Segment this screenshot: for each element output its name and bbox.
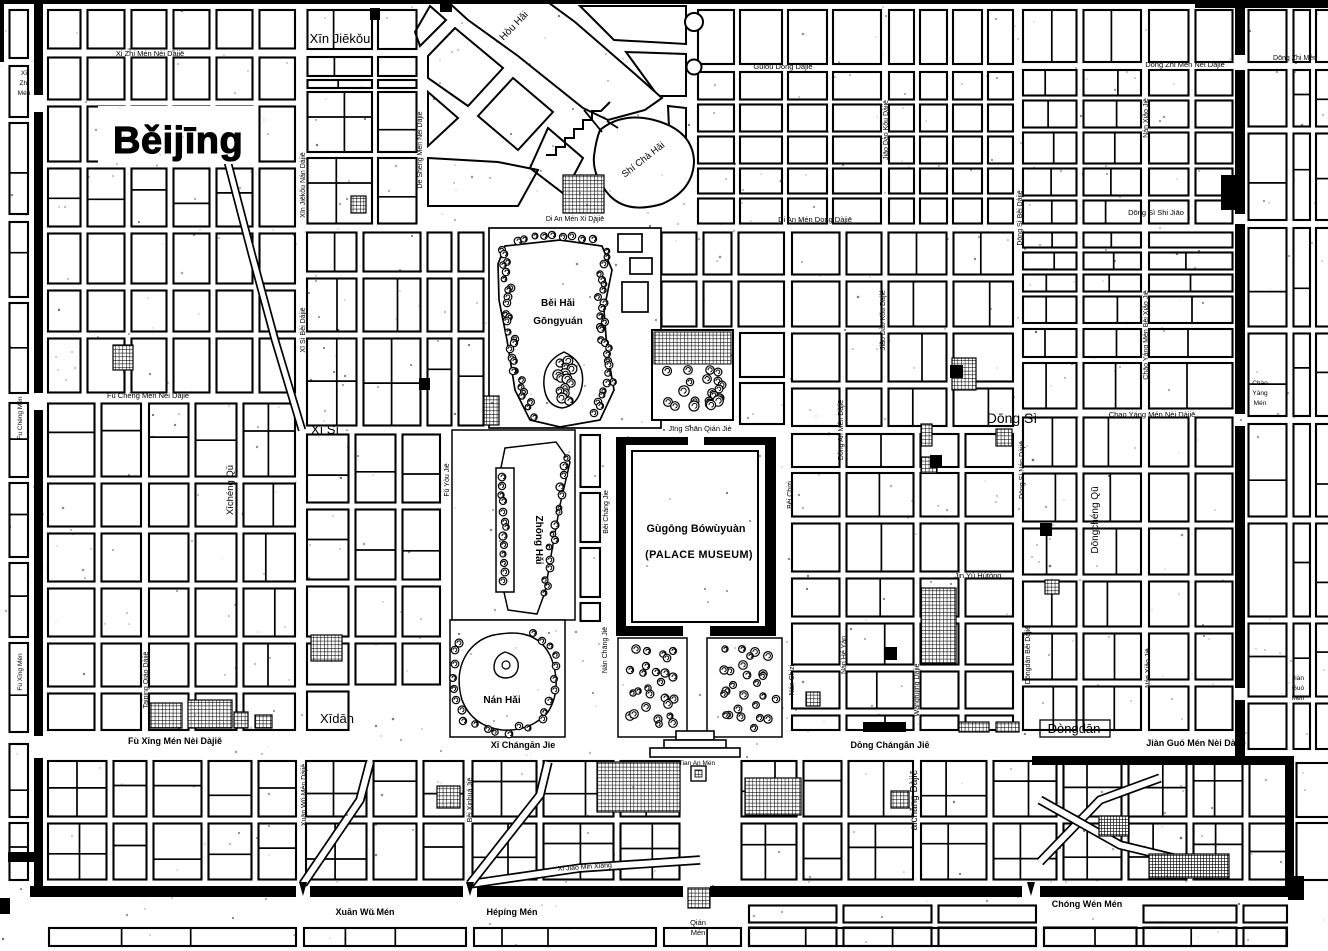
svg-text:Běi Xinhuá Jiē: Běi Xinhuá Jiē <box>467 778 474 823</box>
svg-text:Jiàn: Jiàn <box>1292 675 1304 682</box>
svg-text:Dōng Sì: Dōng Sì <box>987 410 1038 426</box>
svg-text:Běijīng: Běijīng <box>113 120 243 162</box>
svg-text:Dōng Sì Běi Dàjiē: Dōng Sì Běi Dàjiē <box>1017 190 1024 245</box>
svg-text:Hépíng Mén: Hépíng Mén <box>487 907 538 917</box>
svg-text:Chóng Wén Mén: Chóng Wén Mén <box>1052 899 1123 909</box>
svg-text:Jin Yú Hútòng: Jin Yú Hútòng <box>955 571 1002 580</box>
svg-text:Fù Xīng Mén Nèi Dàjiě: Fù Xīng Mén Nèi Dàjiě <box>128 736 222 746</box>
svg-text:Tian An Mén: Tian An Mén <box>679 760 716 767</box>
svg-text:Gùgōng Bówùyuàn: Gùgōng Bówùyuàn <box>647 523 746 535</box>
svg-text:Wángfǔjǐng Dàjiē: Wángfǔjǐng Dàjiē <box>914 663 921 716</box>
svg-text:Taiping Qiáo Dàjiē: Taiping Qiáo Dàjiē <box>143 651 150 708</box>
svg-text:aichǎng Dàjiē: aichǎng Dàjiē <box>909 769 920 830</box>
svg-text:Nán Xiǎo Jiē: Nán Xiǎo Jiē <box>1145 648 1152 688</box>
svg-text:Di An Mén Xi Dàjiē: Di An Mén Xi Dàjiē <box>546 216 604 223</box>
svg-text:Běi Cháng Jie: Běi Cháng Jie <box>603 490 610 534</box>
svg-text:Dòng An Mén Dàjiē: Dòng An Mén Dàjiē <box>838 400 845 460</box>
svg-text:Jīng Shān Qián Jiè: Jīng Shān Qián Jiè <box>668 424 731 433</box>
svg-text:Chāo Yáng Mén Běi Xiǎo Jiē: Chāo Yáng Mén Běi Xiǎo Jiē <box>1143 290 1150 379</box>
svg-text:Mén: Mén <box>1254 400 1267 407</box>
svg-text:Nán Chizi: Nán Chizi <box>789 664 796 695</box>
svg-text:Dōngchéng Qū: Dōngchéng Qū <box>1090 486 1101 553</box>
svg-text:Fǔ Yòu Jiē: Fǔ Yòu Jiē <box>444 463 451 496</box>
svg-text:Dōng Zhi Mén: Dōng Zhi Mén <box>1273 55 1317 62</box>
svg-text:Jiāo Dào Kǒu Dàjiē: Jiāo Dào Kǒu Dàjiē <box>883 100 890 160</box>
svg-text:Gulou Dong Dajie: Gulou Dong Dajie <box>753 62 812 71</box>
svg-text:Dōng Sì Shi Jiāo: Dōng Sì Shi Jiāo <box>1128 208 1184 217</box>
svg-text:Jiǎo Dào Kǒu Dajié: Jiǎo Dào Kǒu Dajié <box>880 290 887 350</box>
svg-text:Zhi: Zhi <box>19 80 28 87</box>
svg-text:Xī Chángān Jie: Xī Chángān Jie <box>491 740 556 750</box>
svg-text:Mén: Mén <box>691 928 706 937</box>
svg-text:Nán Hé Yàn: Nán Hé Yàn <box>841 636 848 674</box>
svg-text:Di An Mén Dong Dàjiē: Di An Mén Dong Dàjiē <box>778 215 852 224</box>
svg-text:Gōngyuán: Gōngyuán <box>533 316 582 327</box>
svg-text:Guó: Guó <box>1292 685 1305 692</box>
svg-text:Mén: Mén <box>1292 695 1305 702</box>
svg-text:Fù Chéng Mén Nèi Dàjiē: Fù Chéng Mén Nèi Dàjiē <box>107 391 189 400</box>
svg-text:Nán Hǎi: Nán Hǎi <box>483 695 520 706</box>
svg-text:Dōng Sì Nán Dàjiē: Dōng Sì Nán Dàjiē <box>1019 441 1026 499</box>
svg-text:Xuān Wǔ Mén: Xuān Wǔ Mén <box>336 907 395 917</box>
svg-text:Xī: Xī <box>21 70 27 77</box>
svg-text:Nán Xiǎo Jiē: Nán Xiǎo Jiē <box>1143 98 1150 138</box>
svg-text:Jiàn Guó Mén Nèi Dàjiē: Jiàn Guó Mén Nèi Dàjiē <box>1146 738 1246 748</box>
svg-text:Xuān Wǔ Mén Dàjiě: Xuān Wǔ Mén Dàjiě <box>301 764 308 826</box>
svg-text:Mén: Mén <box>18 90 31 97</box>
svg-text:Xīn Jiēkǒu: Xīn Jiēkǒu <box>310 31 371 46</box>
svg-text:Běi Chizi: Běi Chizi <box>787 481 794 509</box>
svg-text:Zhōng Hǎi: Zhōng Hǎi <box>533 516 544 565</box>
svg-text:Nán Chāng Jiē: Nán Chāng Jiē <box>602 627 609 673</box>
svg-text:Dōngdān Běi Dàjiē: Dōngdān Běi Dàjiē <box>1025 626 1032 684</box>
svg-text:Xī Sì: Xī Sì <box>311 422 339 437</box>
svg-text:Chao Yáng Mén Nèi Dàjiē: Chao Yáng Mén Nèi Dàjiē <box>1109 410 1196 419</box>
svg-text:Xi Zhi Mén Nèi Dàjiē: Xi Zhi Mén Nèi Dàjiē <box>116 49 184 58</box>
svg-text:Dong Zhi Mén Nèi Dàjiē: Dong Zhi Mén Nèi Dàjiē <box>1145 60 1225 69</box>
svg-text:Dōng Chángān Jiē: Dōng Chángān Jiē <box>850 740 929 750</box>
svg-text:Běi Hǎi: Běi Hǎi <box>541 298 575 309</box>
svg-text:(PALACE MUSEUM): (PALACE MUSEUM) <box>645 549 753 561</box>
svg-text:Xīchéng Qū: Xīchéng Qū <box>225 465 236 515</box>
svg-text:Yáng: Yáng <box>1252 390 1268 397</box>
svg-text:Chào: Chào <box>1252 380 1268 387</box>
svg-text:Qián: Qián <box>690 918 706 927</box>
svg-text:Xīn Jiēkǒu Nán Dàjiē: Xīn Jiēkǒu Nán Dàjiē <box>300 152 307 217</box>
svg-text:Fu Chéng Mén: Fu Chéng Mén <box>17 396 24 439</box>
svg-text:Xī Sì Běi Dàjiē: Xī Sì Běi Dàjiē <box>300 307 307 352</box>
svg-text:De Shēng Mén Nèi Dàjiē: De Shēng Mén Nèi Dàjiē <box>417 111 424 188</box>
svg-text:Dòngdān: Dòngdān <box>1048 721 1101 736</box>
svg-text:Xīdān: Xīdān <box>320 711 354 726</box>
svg-text:Fù Xīng Mén: Fù Xīng Mén <box>17 653 24 691</box>
